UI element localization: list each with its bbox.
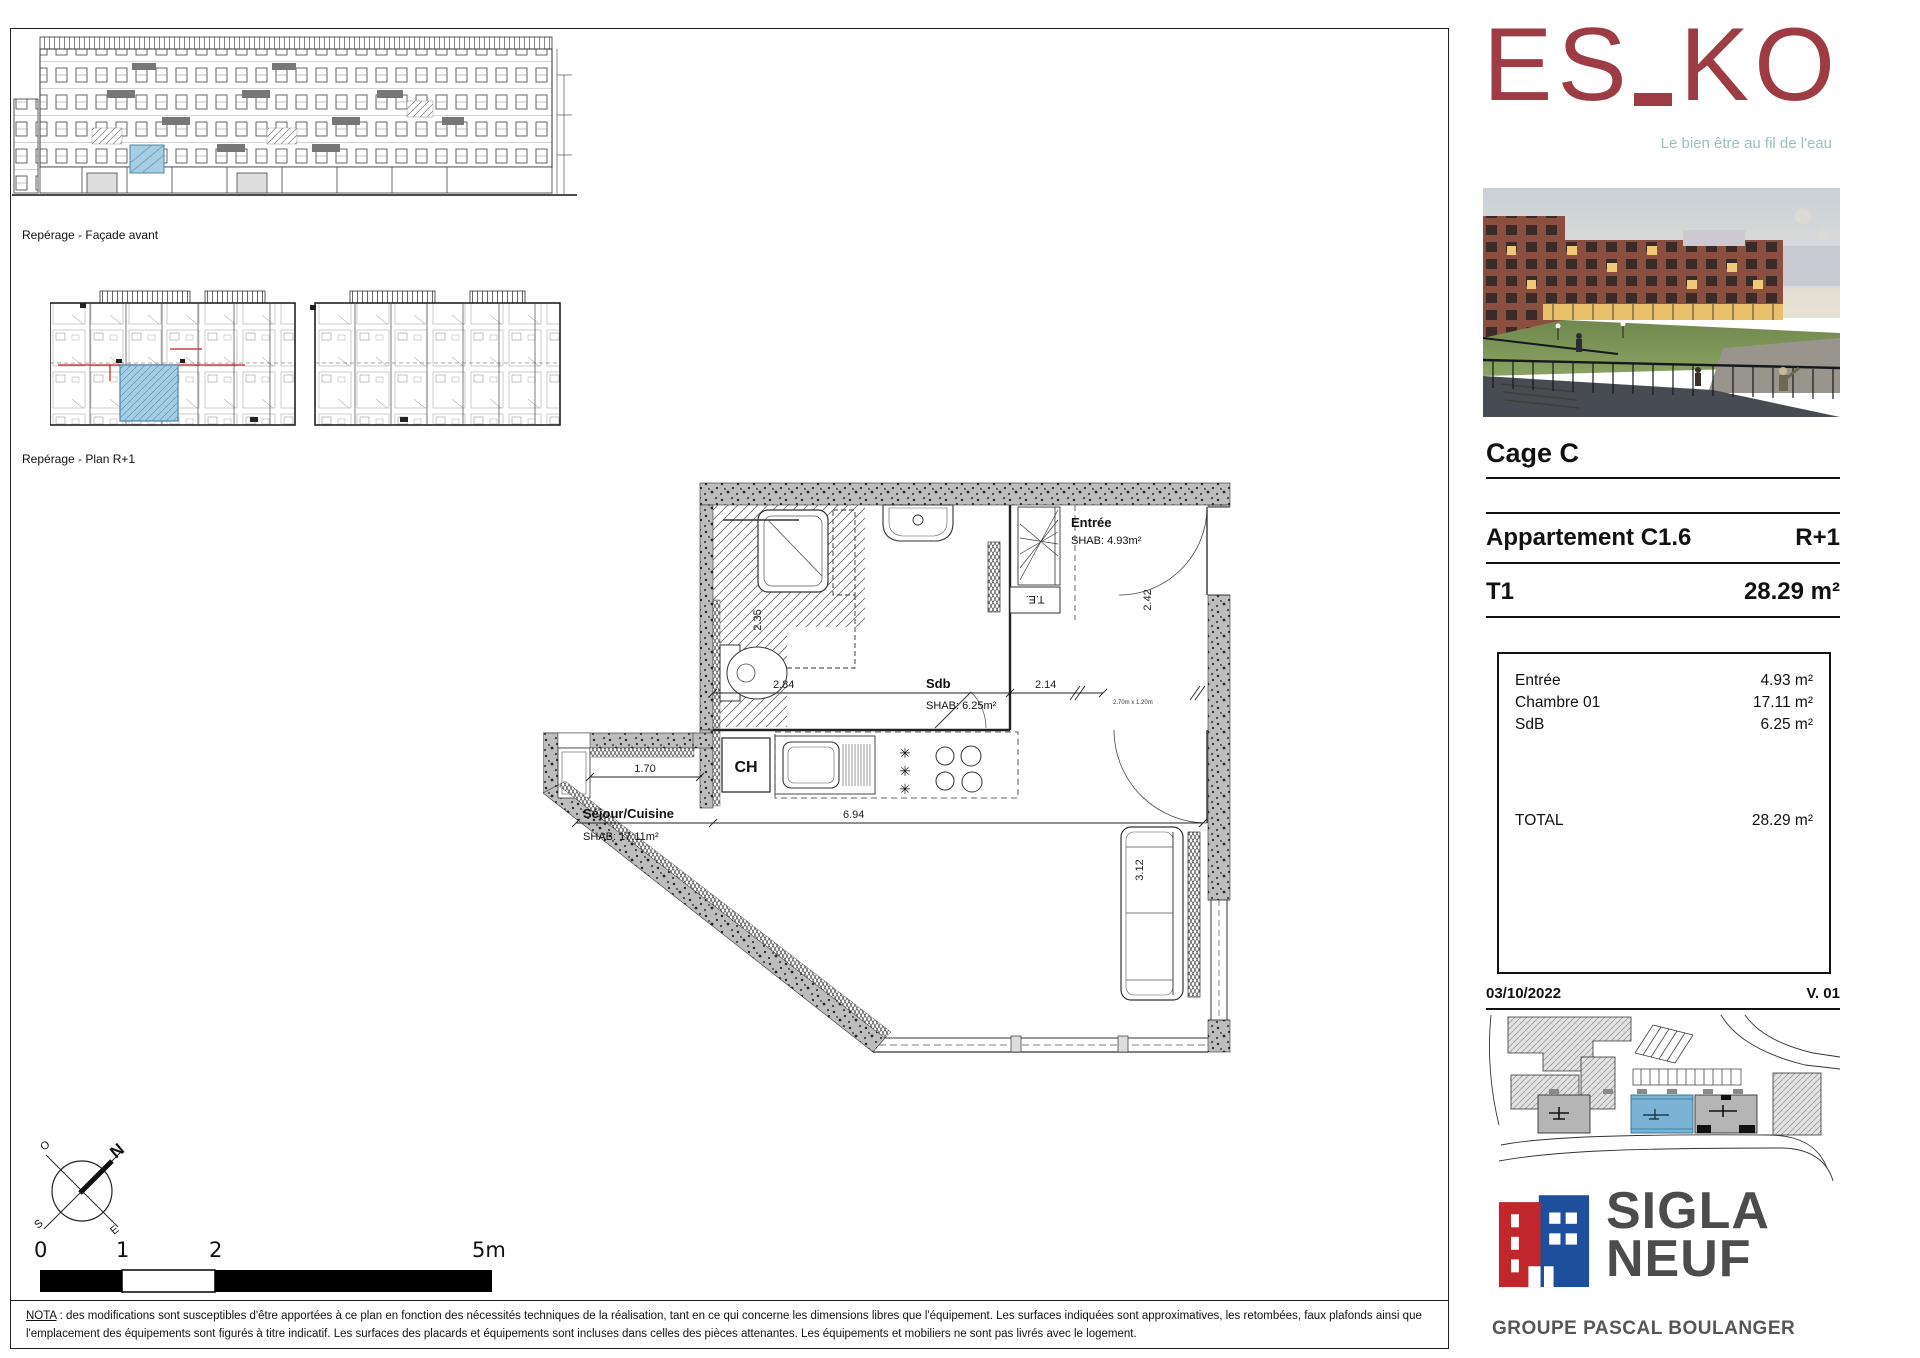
north-arrow (80, 1161, 112, 1193)
nota-text: NOTA : des modifications sont susceptibl… (26, 1308, 1426, 1344)
row-label: Chambre 01 (1515, 694, 1600, 712)
total-value: 28.29 m² (1752, 812, 1813, 830)
sejour-radiator (1188, 832, 1200, 997)
facade-annex (14, 99, 38, 193)
sdb-radiator (988, 542, 1000, 612)
scale-2: 2 (209, 1238, 222, 1262)
date: 03/10/2022 (1486, 985, 1561, 1002)
compass-s: S (32, 1217, 45, 1231)
esko-logo: ES KO Le bien être au fil de l'eau (1483, 18, 1840, 168)
areas-table: Entrée 4.93 m² Chambre 01 17.11 m² SdB 6… (1497, 652, 1831, 974)
facade-label: Repérage - Façade avant (22, 228, 158, 242)
dim-694: 6.94 (843, 809, 864, 821)
esko-part2: KO (1680, 18, 1840, 114)
te-box: T.E. (1010, 587, 1060, 613)
esko-part1: ES (1483, 18, 1632, 114)
cage-title: Cage C (1486, 438, 1579, 469)
row-label: SdB (1515, 716, 1544, 734)
ch-box: CH (722, 738, 770, 792)
dim-235: 2.35 (752, 609, 764, 630)
sejour-shab: SHAB: 17.11m² (583, 831, 659, 843)
wardrobe (1018, 507, 1060, 585)
plan-sheet: Repérage - Façade avant (0, 0, 1920, 1358)
table-row: Chambre 01 17.11 m² (1515, 694, 1813, 712)
te-label: T.E. (1026, 593, 1045, 605)
esko-underscore-icon (1634, 93, 1672, 106)
dim-312: 3.12 (1134, 859, 1146, 880)
sink (883, 505, 953, 541)
apartment-area: 28.29 m² (1744, 578, 1840, 606)
scale-0: 0 (34, 1238, 47, 1262)
site-highlight-building (1631, 1095, 1693, 1133)
sigla-group-line: GROUPE PASCAL BOULANGER (1492, 1318, 1795, 1340)
bottom-windows (873, 1036, 1208, 1052)
divider (1486, 616, 1840, 618)
facade-right-marks (557, 49, 572, 195)
sigla-buildings-icon (1492, 1188, 1596, 1296)
table-total-row: TOTAL 28.29 m² (1515, 812, 1813, 830)
plan-r1-label: Repérage - Plan R+1 (22, 452, 135, 466)
svg-text:✳: ✳ (899, 781, 911, 797)
version: V. 01 (1806, 985, 1840, 1002)
sigla-line1: SIGLA (1606, 1188, 1770, 1236)
kitchen: ✳✳✳ (775, 732, 1018, 798)
plan-r1-drawing (50, 285, 580, 445)
facade-roof (40, 37, 552, 49)
scale-1: 1 (116, 1238, 129, 1262)
site-parking-strip (1633, 1069, 1741, 1085)
apartment-row: Appartement C1.6 R+1 (1486, 524, 1840, 552)
dim-242: 2.42 (1142, 589, 1154, 610)
divider (1486, 562, 1840, 564)
scale-5m: 5m (472, 1238, 506, 1262)
sejour-label: Séjour/Cuisine (583, 806, 674, 821)
row-label: Entrée (1515, 672, 1561, 690)
esko-tagline: Le bien être au fil de l'eau (1661, 135, 1832, 152)
site-plan-drawing (1483, 1013, 1840, 1185)
compass-n: N (106, 1140, 128, 1162)
sigla-line2: NEUF (1606, 1236, 1770, 1284)
nota-body: : des modifications sont susceptibles d'… (26, 1310, 1422, 1340)
dim-small: 2.70m x 1.20m (1113, 700, 1153, 706)
compass-o: O (38, 1138, 53, 1153)
dim-284: 2.84 (773, 679, 794, 691)
render-glass-ground-floor (1543, 304, 1783, 320)
apartment-label: Appartement C1.6 (1486, 524, 1691, 552)
type-row: T1 28.29 m² (1486, 578, 1840, 606)
apartment-floorplan: T.E. CH ✳✳✳ (543, 480, 1243, 1060)
dim-170: 1.70 (634, 763, 655, 775)
divider (1486, 512, 1840, 514)
entree-shab: SHAB: 4.93m² (1071, 535, 1142, 547)
table-row: Entrée 4.93 m² (1515, 672, 1813, 690)
dim-214: 2.14 (1035, 679, 1056, 691)
facade-elevation-drawing (12, 35, 577, 235)
building-render-image (1483, 188, 1840, 417)
date-row: 03/10/2022 V. 01 (1486, 985, 1840, 1002)
sigla-neuf-logo: SIGLA NEUF (1492, 1188, 1842, 1296)
site-diagonal-parking (1635, 1025, 1693, 1063)
sdb-label: Sdb (926, 676, 951, 691)
row-value: 17.11 m² (1753, 694, 1813, 712)
kitchen-hob (936, 746, 982, 792)
ch-label: CH (734, 759, 757, 776)
svg-text:✳: ✳ (899, 745, 911, 761)
sofa (1121, 827, 1183, 1000)
entrance-door (1119, 507, 1230, 595)
divider (1486, 1008, 1840, 1010)
compass-e: E (108, 1223, 121, 1237)
scale-bar-graphic (30, 1268, 500, 1294)
entree-label: Entrée (1071, 515, 1111, 530)
site-building-row (1538, 1089, 1757, 1133)
sdb-shab: SHAB: 6.25m² (926, 700, 997, 712)
nota-label: NOTA (26, 1310, 56, 1322)
plan-block-right (315, 303, 560, 425)
right-window (1208, 900, 1230, 1020)
sejour-niche-gap (558, 733, 590, 748)
compass: N O S E (30, 1135, 130, 1240)
row-value: 4.93 m² (1760, 672, 1813, 690)
nota-divider (10, 1300, 1448, 1301)
table-row: SdB 6.25 m² (1515, 716, 1813, 734)
divider (1486, 477, 1840, 479)
total-label: TOTAL (1515, 812, 1564, 830)
apartment-floor: R+1 (1795, 524, 1840, 552)
scale-bar: 0 1 2 5m (30, 1238, 530, 1298)
apartment-type: T1 (1486, 578, 1514, 606)
kitchen-burner-stars: ✳✳✳ (899, 745, 911, 797)
row-value: 6.25 m² (1760, 716, 1813, 734)
sejour-door (1114, 730, 1207, 823)
svg-text:✳: ✳ (899, 763, 911, 779)
